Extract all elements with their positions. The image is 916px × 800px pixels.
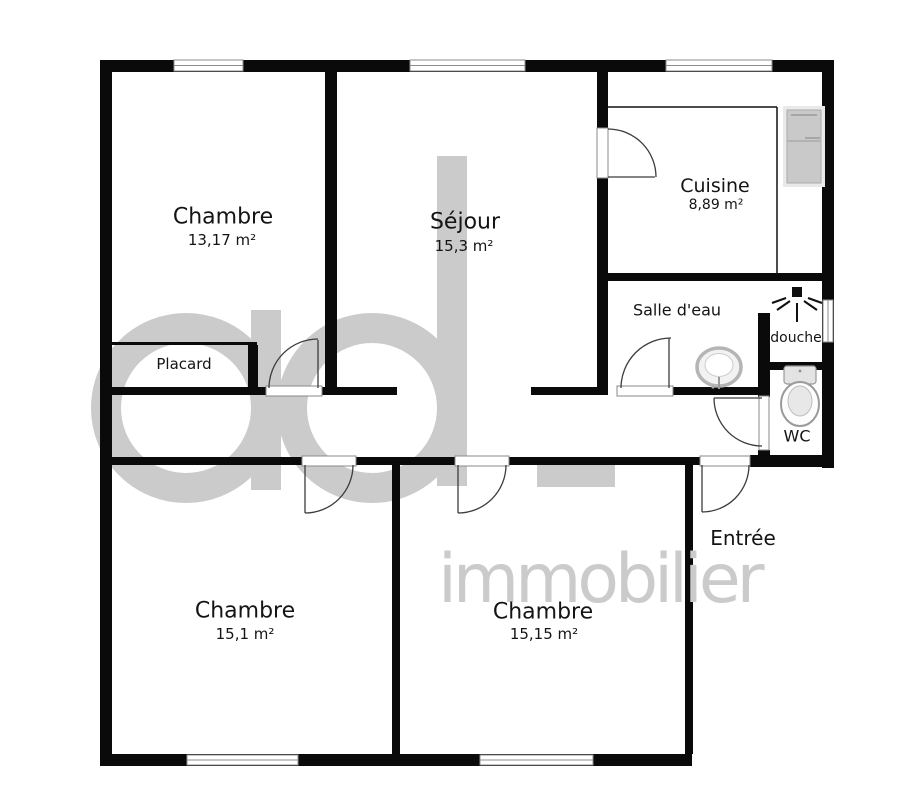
- room-label-cuisine: Cuisine: [680, 175, 750, 197]
- room-area-chambre-bm: 15,15 m²: [510, 625, 578, 643]
- room-label-wc: WC: [784, 427, 811, 446]
- door-swing: [714, 398, 762, 446]
- room-area-chambre-bl: 15,1 m²: [216, 625, 275, 643]
- room-area-chambre-tl: 13,17 m²: [188, 231, 256, 249]
- floorplan-canvas: [0, 0, 916, 800]
- window: [187, 755, 298, 765]
- room-label-douche: douche: [770, 330, 822, 346]
- room-label-placard: Placard: [156, 355, 211, 373]
- window: [666, 60, 772, 71]
- room-label-chambre-bm: Chambre: [493, 600, 593, 625]
- shower-icon: [772, 287, 822, 322]
- door-swing: [621, 338, 671, 388]
- window: [823, 300, 833, 342]
- window: [410, 60, 525, 71]
- sink-icon: [697, 348, 741, 389]
- window: [480, 755, 593, 765]
- door-swing: [608, 129, 656, 177]
- room-area-sejour: 15,3 m²: [435, 237, 494, 255]
- door-swing: [702, 465, 749, 512]
- floorplan-page: immobilier: [0, 0, 916, 800]
- watermark-brand-text: immobilier: [438, 546, 761, 614]
- room-label-entree: Entrée: [710, 526, 776, 550]
- room-label-salle-deau: Salle d'eau: [633, 301, 721, 320]
- room-area-cuisine: 8,89 m²: [689, 197, 744, 213]
- toilet-icon: [781, 366, 819, 426]
- room-label-chambre-bl: Chambre: [195, 599, 295, 624]
- window: [174, 60, 243, 71]
- room-label-sejour: Séjour: [430, 210, 500, 235]
- fridge-icon: [783, 106, 825, 187]
- room-label-chambre-tl: Chambre: [173, 205, 273, 230]
